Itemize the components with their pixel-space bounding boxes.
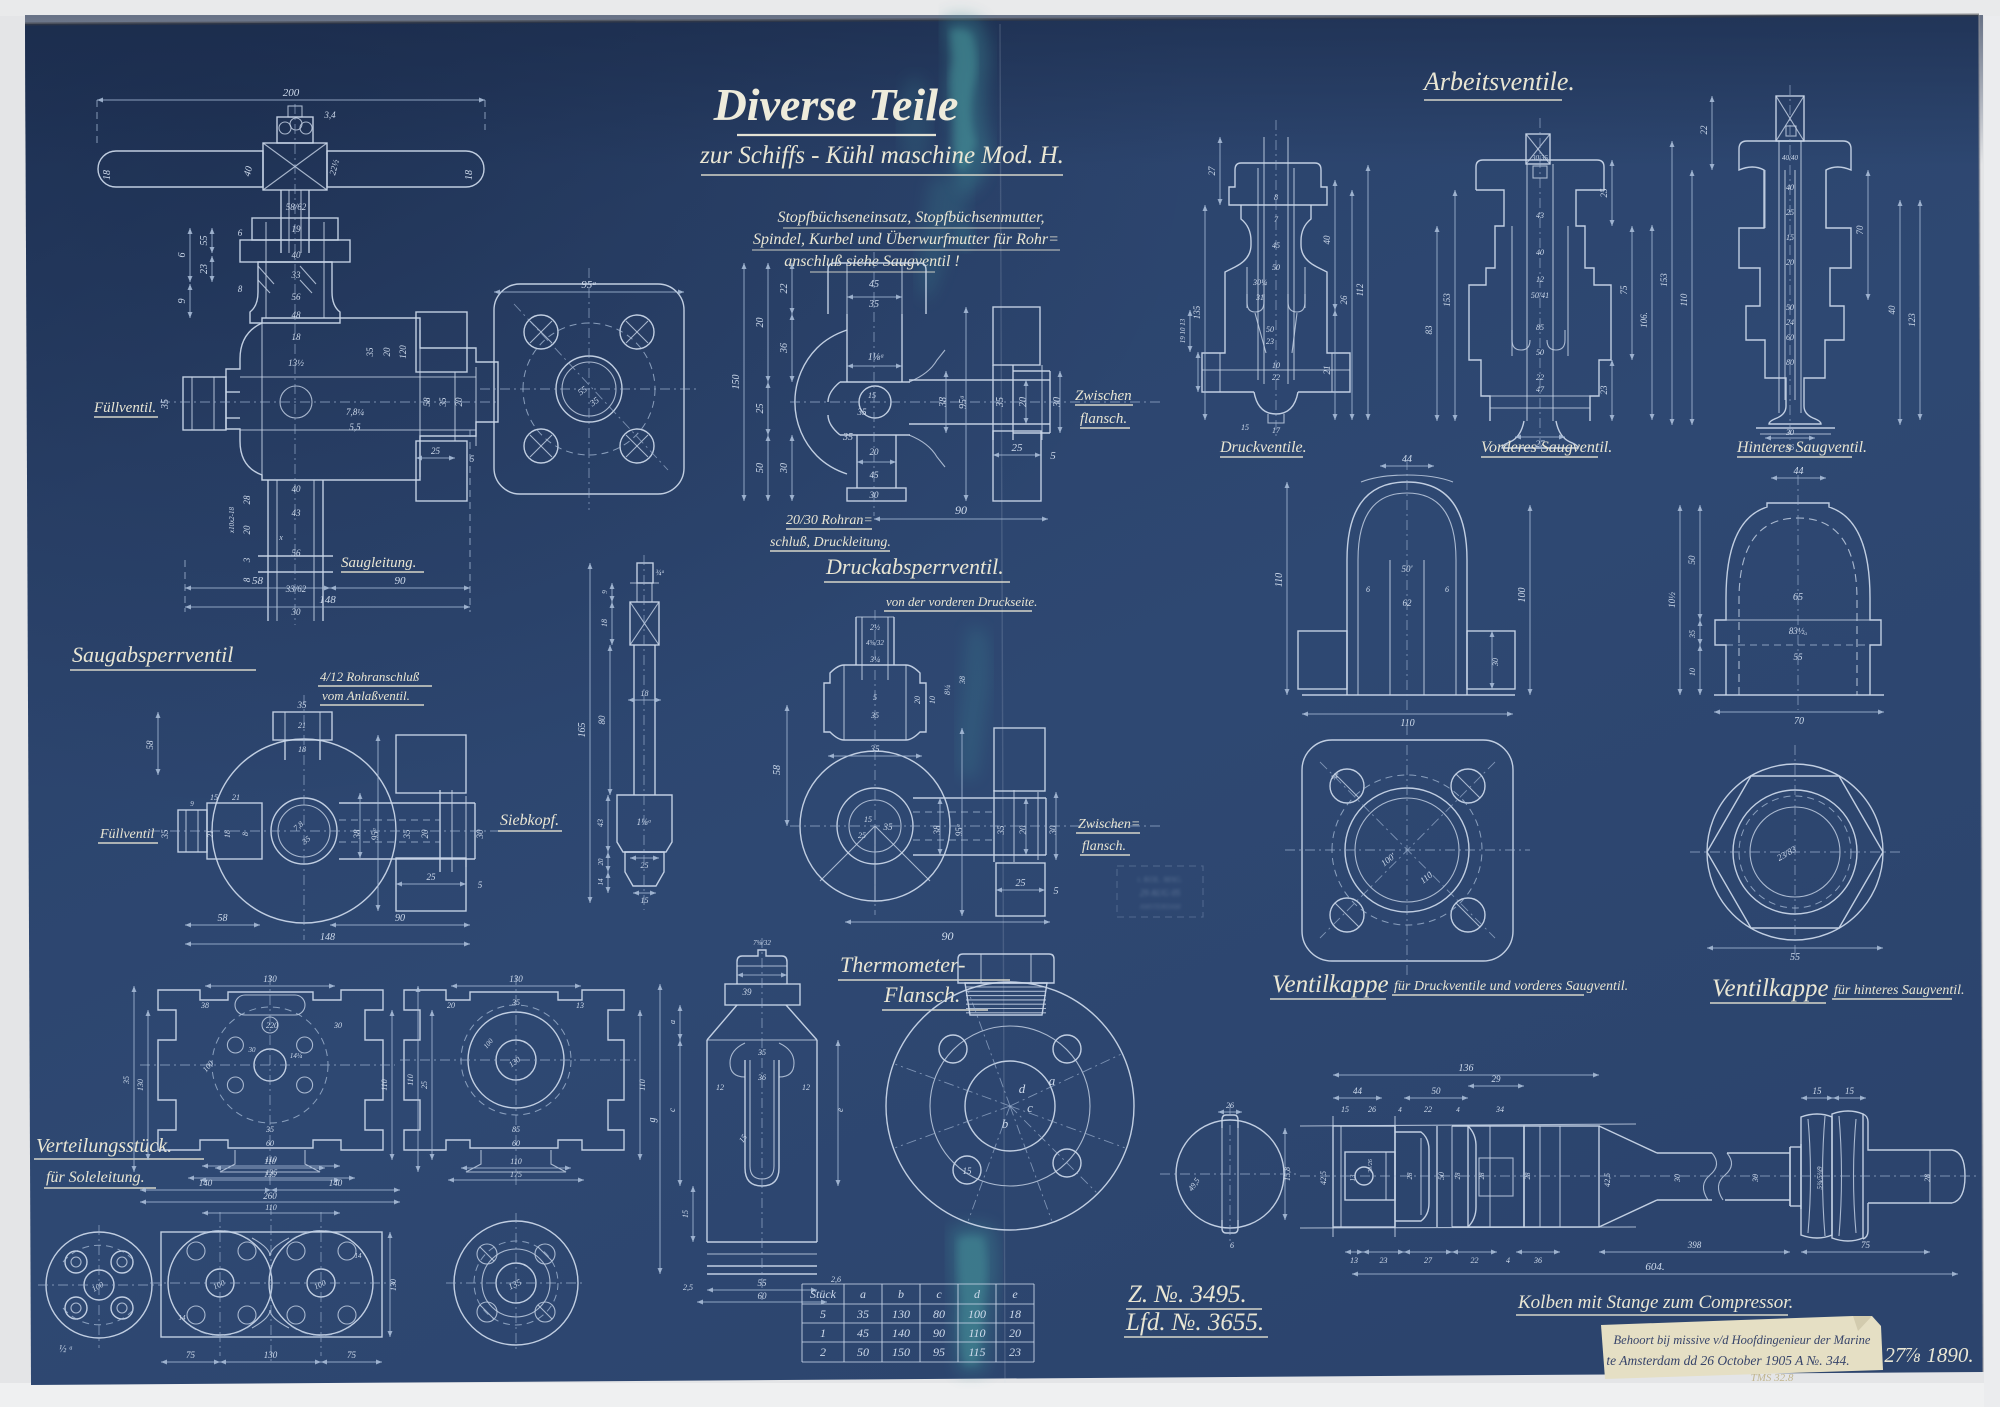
svg-text:20: 20 [1009, 1326, 1021, 1340]
svg-text:110: 110 [968, 1326, 985, 1340]
svg-text:70: 70 [1855, 225, 1865, 235]
svg-text:56: 56 [292, 292, 302, 302]
svg-text:25: 25 [1599, 188, 1609, 198]
svg-text:½ ᵃ: ½ ᵃ [59, 1344, 73, 1355]
svg-text:18: 18 [292, 332, 302, 342]
svg-text:43: 43 [1536, 211, 1544, 220]
svg-text:40: 40 [1786, 183, 1794, 192]
svg-text:25: 25 [1016, 878, 1026, 889]
svg-text:flansch.: flansch. [1082, 839, 1126, 854]
svg-text:7,8¼: 7,8¼ [346, 407, 364, 417]
svg-text:25: 25 [420, 1081, 429, 1089]
svg-text:18: 18 [298, 745, 306, 754]
svg-text:18: 18 [641, 689, 649, 698]
svg-text:27⅞ 1890.: 27⅞ 1890. [1884, 1343, 1973, 1367]
svg-text:60: 60 [1786, 333, 1794, 342]
svg-text:23: 23 [199, 264, 210, 274]
svg-text:95: 95 [933, 1345, 945, 1359]
svg-text:Flansch.: Flansch. [883, 982, 960, 1007]
svg-text:90: 90 [955, 503, 967, 517]
svg-text:15: 15 [1241, 423, 1249, 432]
svg-text:136: 136 [1459, 1063, 1474, 1074]
svg-text:flansch.: flansch. [1080, 411, 1127, 427]
svg-text:5: 5 [478, 880, 483, 890]
svg-text:35: 35 [996, 825, 1006, 836]
svg-text:36: 36 [1533, 1256, 1542, 1265]
svg-text:für hinteres Saugventil.: für hinteres Saugventil. [1834, 983, 1965, 998]
svg-text:83: 83 [1424, 325, 1434, 335]
svg-text:13½: 13½ [288, 358, 304, 368]
svg-text:30¼: 30¼ [1252, 278, 1267, 287]
svg-text:58: 58 [422, 397, 432, 407]
svg-text:95ᵃ: 95ᵃ [581, 279, 596, 291]
svg-text:x: x [278, 533, 283, 542]
svg-text:35: 35 [365, 347, 375, 358]
svg-text:110: 110 [380, 1079, 389, 1090]
svg-text:50': 50' [1402, 564, 1414, 574]
svg-text:Siebkopf.: Siebkopf. [500, 812, 559, 829]
svg-text:1: 1 [820, 1326, 826, 1340]
svg-text:8¼: 8¼ [943, 685, 952, 695]
svg-text:150: 150 [731, 375, 742, 390]
svg-text:30: 30 [333, 1021, 342, 1030]
svg-text:6: 6 [1366, 585, 1370, 594]
svg-text:130: 130 [892, 1307, 910, 1321]
svg-text:Verteilungsstück.: Verteilungsstück. [36, 1135, 172, 1157]
svg-text:Diverse Teile: Diverse Teile [713, 79, 959, 130]
svg-text:25: 25 [1012, 442, 1024, 454]
svg-text:58: 58 [218, 913, 228, 924]
svg-text:Saugleitung.: Saugleitung. [341, 555, 416, 571]
svg-text:130: 130 [136, 1079, 145, 1091]
svg-text:38: 38 [938, 397, 949, 408]
svg-text:44: 44 [1353, 1086, 1363, 1096]
svg-text:Füllventil: Füllventil [99, 827, 155, 842]
svg-text:30: 30 [1673, 1174, 1682, 1183]
svg-text:130: 130 [263, 974, 277, 984]
svg-text:95ᵃ: 95ᵃ [958, 395, 969, 409]
svg-text:anschluß siehe Saugventil !: anschluß siehe Saugventil ! [784, 253, 960, 270]
svg-text:40: 40 [1887, 305, 1897, 315]
svg-text:44: 44 [1794, 466, 1804, 477]
svg-text:110: 110 [265, 1203, 276, 1212]
svg-text:12: 12 [716, 1083, 724, 1092]
svg-text:10: 10 [928, 696, 937, 704]
svg-text:90: 90 [933, 1326, 945, 1340]
svg-text:Zwischen: Zwischen [1075, 388, 1132, 404]
svg-text:13: 13 [1350, 1256, 1358, 1265]
svg-text:8: 8 [1274, 193, 1278, 202]
svg-text:175: 175 [510, 1170, 522, 1179]
svg-text:55: 55 [199, 236, 210, 246]
svg-text:4/12 Rohranschluß: 4/12 Rohranschluß [320, 669, 420, 684]
svg-text:38: 38 [958, 676, 967, 685]
svg-text:38: 38 [200, 1001, 209, 1010]
svg-text:d: d [1019, 1081, 1026, 1096]
svg-text:12: 12 [802, 1083, 810, 1092]
svg-text:30: 30 [1751, 1174, 1760, 1183]
svg-text:200: 200 [283, 87, 300, 99]
svg-text:106.: 106. [1639, 312, 1649, 328]
svg-text:25: 25 [641, 861, 649, 870]
svg-text:75: 75 [347, 1350, 357, 1360]
svg-text:30: 30 [1785, 428, 1794, 437]
svg-text:schluß, Druckleitung.: schluß, Druckleitung. [770, 535, 891, 550]
svg-text:43: 43 [596, 819, 605, 827]
svg-text:9: 9 [601, 590, 609, 594]
svg-text:6: 6 [1230, 1241, 1234, 1250]
svg-text:21: 21 [1322, 366, 1332, 375]
svg-text:100: 100 [968, 1307, 986, 1321]
svg-text:50: 50 [857, 1345, 869, 1359]
svg-text:15: 15 [864, 815, 872, 824]
svg-text:Stopfbüchseneinsatz, Stopfbüch: Stopfbüchseneinsatz, Stopfbüchsenmutter, [777, 209, 1044, 226]
svg-text:Stück: Stück [810, 1287, 837, 1301]
svg-text:25: 25 [427, 872, 437, 882]
svg-text:28: 28 [1923, 1174, 1932, 1182]
svg-text:Druckventile.: Druckventile. [1219, 439, 1307, 456]
svg-text:3¼: 3¼ [869, 655, 880, 664]
svg-text:24: 24 [1786, 318, 1794, 327]
svg-text:c: c [667, 1108, 677, 1112]
svg-text:75: 75 [1619, 285, 1629, 295]
svg-text:Saugabsperrventil: Saugabsperrventil [72, 642, 233, 667]
svg-text:Arbeitsventile.: Arbeitsventile. [1422, 67, 1575, 96]
svg-text:80: 80 [1786, 358, 1794, 367]
svg-text:130: 130 [264, 1350, 278, 1360]
svg-text:Kolben mit Stange zum Compress: Kolben mit Stange zum Compressor. [1517, 1292, 1793, 1313]
svg-text:260: 260 [263, 1191, 277, 1201]
svg-text:604.: 604. [1645, 1261, 1664, 1273]
svg-text:110: 110 [1679, 293, 1689, 306]
svg-text:90: 90 [942, 929, 954, 943]
svg-text:8: 8 [238, 284, 243, 294]
svg-text:x10x2-18: x10x2-18 [228, 506, 236, 534]
svg-text:33: 33 [291, 270, 302, 280]
svg-text:45: 45 [1272, 241, 1280, 250]
svg-text:28: 28 [1406, 1172, 1414, 1180]
svg-text:35: 35 [1688, 630, 1697, 639]
svg-text:a: a [1049, 1073, 1056, 1088]
svg-text:Spindel, Kurbel und Überwurfmu: Spindel, Kurbel und Überwurfmutter für R… [753, 230, 1059, 248]
svg-text:14¼: 14¼ [290, 1052, 303, 1060]
svg-text:22: 22 [779, 284, 790, 294]
svg-text:5¾/5¼9: 5¾/5¼9 [1816, 1166, 1824, 1189]
svg-text:120: 120 [398, 345, 408, 359]
svg-text:50: 50 [1536, 348, 1544, 357]
svg-text:18: 18 [600, 619, 609, 627]
svg-text:10: 10 [1272, 361, 1280, 370]
svg-text:19: 19 [292, 224, 302, 234]
svg-text:33/62: 33/62 [285, 584, 307, 594]
svg-text:15,8: 15,8 [1283, 1167, 1292, 1181]
svg-text:29/26: 29/26 [1368, 1159, 1374, 1173]
svg-text:20: 20 [1786, 258, 1794, 267]
svg-text:35: 35 [857, 407, 868, 417]
svg-text:140: 140 [199, 1178, 213, 1188]
svg-text:58: 58 [252, 575, 264, 587]
svg-text:TMS 32.8: TMS 32.8 [1751, 1372, 1794, 1384]
svg-text:39: 39 [742, 987, 753, 997]
svg-text:150: 150 [892, 1345, 910, 1359]
svg-text:70: 70 [1794, 716, 1804, 727]
svg-text:18: 18 [102, 170, 113, 180]
svg-text:90: 90 [395, 575, 407, 587]
svg-text:50: 50 [1786, 303, 1794, 312]
svg-text:55: 55 [1794, 652, 1804, 662]
svg-text:50/41: 50/41 [1531, 291, 1549, 300]
svg-text:110: 110 [1274, 573, 1285, 587]
svg-text:¾ᵃ: ¾ᵃ [655, 568, 664, 577]
svg-text:62: 62 [1403, 598, 1413, 608]
svg-text:90: 90 [395, 913, 405, 924]
svg-text:t. KOL. MAG.: t. KOL. MAG. [1137, 875, 1182, 884]
svg-text:135: 135 [1192, 305, 1202, 319]
svg-text:c: c [1027, 1100, 1033, 1115]
svg-text:35: 35 [995, 397, 1006, 408]
svg-text:20: 20 [913, 696, 922, 704]
svg-text:Thermometer-: Thermometer- [840, 952, 965, 977]
svg-text:Vorderes Saugventil.: Vorderes Saugventil. [1481, 439, 1612, 456]
svg-text:22: 22 [1536, 373, 1544, 382]
svg-text:Ventilkappe: Ventilkappe [1712, 975, 1829, 1002]
svg-text:20: 20 [420, 829, 430, 839]
svg-text:4: 4 [1506, 1256, 1510, 1265]
svg-text:398: 398 [1687, 1240, 1702, 1250]
svg-text:19 10 13: 19 10 13 [1179, 318, 1187, 343]
svg-text:35: 35 [842, 432, 853, 443]
svg-text:zur Schiffs - Kühl maschine Mo: zur Schiffs - Kühl maschine Mod. H. [699, 142, 1064, 169]
svg-text:50: 50 [1437, 1172, 1446, 1180]
svg-text:20: 20 [447, 1001, 455, 1010]
svg-text:31: 31 [1255, 293, 1264, 302]
svg-text:40: 40 [1322, 235, 1332, 245]
svg-text:35: 35 [438, 397, 448, 408]
svg-text:für Soleleitung.: für Soleleitung. [46, 1169, 145, 1186]
svg-text:148: 148 [320, 932, 335, 943]
svg-text:40: 40 [1536, 248, 1544, 257]
svg-text:26: 26 [1226, 1101, 1234, 1110]
svg-text:26: 26 [1339, 295, 1349, 305]
svg-text:g: g [647, 1118, 658, 1123]
svg-text:35: 35 [511, 998, 520, 1007]
svg-text:35: 35 [122, 1076, 131, 1085]
svg-text:von der vorderen Druckseite.: von der vorderen Druckseite. [886, 594, 1037, 609]
svg-text:Füllventil.: Füllventil. [93, 400, 156, 416]
svg-text:60: 60 [758, 1291, 768, 1301]
svg-text:14: 14 [355, 1252, 363, 1260]
svg-text:te Amsterdam dd 26 October 190: te Amsterdam dd 26 October 1905 A №. 344… [1606, 1353, 1849, 1368]
svg-text:15: 15 [641, 896, 649, 905]
svg-text:15: 15 [868, 391, 876, 400]
svg-text:23: 23 [1599, 385, 1609, 395]
svg-text:1⅛ᵃ: 1⅛ᵃ [868, 352, 885, 363]
svg-text:vom Anlaßventil.: vom Anlaßventil. [322, 688, 410, 703]
svg-text:20: 20 [597, 858, 605, 866]
svg-text:22: 22 [1424, 1105, 1432, 1114]
svg-text:42,5: 42,5 [1603, 1173, 1612, 1187]
svg-text:45: 45 [857, 1326, 869, 1340]
svg-text:75: 75 [1861, 1240, 1871, 1250]
svg-text:Lfd. №. 3655.: Lfd. №. 3655. [1125, 1309, 1264, 1336]
svg-text:135: 135 [266, 1168, 278, 1177]
svg-text:13: 13 [576, 1001, 584, 1010]
svg-text:18: 18 [464, 170, 475, 180]
svg-text:21: 21 [298, 721, 306, 730]
svg-text:25: 25 [755, 404, 766, 414]
svg-text:27: 27 [1424, 1256, 1433, 1265]
svg-text:Behoort bij missive v/d Hoofdi: Behoort bij missive v/d Hoofdingenieur d… [1614, 1333, 1871, 1347]
svg-text:9: 9 [190, 800, 194, 808]
svg-text:15: 15 [963, 1166, 973, 1176]
svg-text:e: e [1012, 1287, 1018, 1301]
svg-text:20: 20 [242, 525, 252, 535]
svg-text:80: 80 [933, 1307, 945, 1321]
svg-text:25: 25 [1786, 208, 1794, 217]
svg-text:60: 60 [266, 1139, 274, 1148]
svg-text:36: 36 [779, 343, 790, 354]
svg-text:30: 30 [248, 1046, 257, 1054]
svg-text:15: 15 [1341, 1105, 1349, 1114]
svg-text:4: 4 [1398, 1106, 1402, 1114]
svg-text:c: c [936, 1287, 942, 1301]
svg-text:Zwischen=: Zwischen= [1078, 817, 1140, 832]
svg-text:für Druckventile und vorderes: für Druckventile und vorderes Saugventil… [1394, 979, 1628, 994]
svg-text:b: b [1002, 1116, 1009, 1131]
svg-text:58: 58 [145, 740, 155, 750]
svg-text:148: 148 [319, 594, 336, 606]
svg-text:30: 30 [291, 607, 302, 617]
svg-text:42,5: 42,5 [1319, 1171, 1328, 1185]
svg-text:5: 5 [1050, 450, 1056, 462]
svg-text:10½: 10½ [1667, 592, 1677, 608]
svg-text:20: 20 [454, 397, 464, 407]
svg-text:35: 35 [160, 829, 170, 840]
svg-text:22: 22 [1272, 373, 1280, 382]
svg-text:8: 8 [242, 577, 252, 582]
svg-text:18: 18 [1009, 1307, 1021, 1321]
svg-text:22: 22 [1699, 125, 1709, 135]
svg-text:140: 140 [892, 1326, 910, 1340]
svg-text:35: 35 [757, 1048, 766, 1057]
svg-text:130: 130 [509, 974, 523, 984]
svg-text:30: 30 [779, 463, 790, 474]
svg-text:26: 26 [1368, 1105, 1376, 1114]
svg-text:153: 153 [1659, 273, 1669, 287]
svg-text:115: 115 [968, 1345, 985, 1359]
svg-text:35: 35 [868, 299, 879, 310]
svg-text:123: 123 [1907, 313, 1917, 327]
svg-text:2,6: 2,6 [831, 1275, 841, 1284]
svg-text:140: 140 [329, 1178, 343, 1188]
svg-text:35: 35 [870, 711, 879, 720]
svg-text:55: 55 [1790, 952, 1800, 963]
svg-text:65: 65 [1793, 592, 1803, 603]
svg-text:220: 220 [266, 1021, 278, 1030]
svg-text:110: 110 [265, 1155, 276, 1164]
svg-text:83½ₐ: 83½ₐ [1789, 626, 1808, 636]
svg-text:23: 23 [1009, 1345, 1021, 1359]
svg-text:15: 15 [210, 793, 218, 802]
svg-text:48: 48 [292, 310, 302, 320]
svg-text:110: 110 [638, 1079, 647, 1090]
svg-text:b: b [898, 1287, 904, 1301]
svg-text:28: 28 [242, 495, 252, 505]
svg-text:130: 130 [389, 1279, 398, 1291]
svg-text:58: 58 [772, 765, 783, 775]
svg-text:28: 28 [1524, 1172, 1532, 1180]
svg-text:Druckabsperrventil.: Druckabsperrventil. [825, 554, 1004, 579]
svg-text:43: 43 [292, 508, 302, 518]
svg-text:47: 47 [1536, 385, 1545, 394]
svg-text:35: 35 [883, 822, 894, 832]
svg-text:4: 4 [1456, 1106, 1460, 1114]
svg-text:a: a [860, 1287, 866, 1301]
svg-text:15: 15 [1813, 1086, 1823, 1096]
svg-text:40: 40 [292, 250, 302, 260]
svg-text:6: 6 [238, 228, 243, 238]
svg-text:25: 25 [431, 446, 441, 456]
svg-text:35: 35 [160, 399, 171, 410]
svg-text:29 AUG 05: 29 AUG 05 [1140, 888, 1181, 898]
svg-text:75: 75 [186, 1350, 196, 1360]
svg-text:3: 3 [242, 557, 252, 563]
svg-text:20: 20 [755, 318, 766, 328]
svg-text:29: 29 [1492, 1074, 1502, 1084]
svg-text:AMSTERDAM: AMSTERDAM [1138, 903, 1181, 911]
svg-text:23: 23 [1266, 337, 1274, 346]
svg-text:58/62: 58/62 [286, 202, 307, 212]
svg-text:21: 21 [232, 793, 240, 802]
svg-text:85: 85 [512, 1125, 520, 1134]
svg-text:40/40: 40/40 [1782, 154, 1798, 162]
svg-text:e: e [835, 1108, 845, 1112]
svg-text:Z. №. 3495.: Z. №. 3495. [1128, 1281, 1247, 1308]
svg-text:15: 15 [681, 1210, 690, 1218]
svg-text:40: 40 [292, 484, 302, 494]
svg-text:3,4: 3,4 [323, 110, 336, 120]
svg-text:5: 5 [820, 1307, 826, 1321]
svg-text:27: 27 [1207, 166, 1217, 176]
svg-text:50: 50 [1272, 263, 1280, 272]
svg-text:23: 23 [1380, 1256, 1388, 1265]
svg-text:28: 28 [1478, 1172, 1486, 1180]
svg-text:80: 80 [597, 715, 607, 725]
svg-text:110: 110 [510, 1157, 521, 1166]
svg-text:20/30 Rohran=: 20/30 Rohran= [786, 513, 873, 528]
svg-text:a: a [668, 1020, 677, 1024]
svg-text:34: 34 [1495, 1105, 1504, 1114]
svg-text:5: 5 [1054, 886, 1059, 897]
svg-text:9: 9 [177, 299, 188, 304]
svg-text:20: 20 [1018, 397, 1029, 407]
svg-text:50: 50 [1687, 555, 1697, 565]
svg-text:35: 35 [856, 1307, 869, 1321]
svg-text:20: 20 [382, 347, 392, 357]
svg-text:28: 28 [1454, 1172, 1462, 1180]
svg-text:50: 50 [1266, 325, 1274, 334]
svg-text:50: 50 [755, 463, 766, 473]
svg-text:12: 12 [1536, 275, 1544, 284]
svg-text:55: 55 [758, 1278, 768, 1288]
svg-text:35: 35 [297, 700, 308, 710]
svg-text:15: 15 [1845, 1086, 1855, 1096]
svg-text:30: 30 [1052, 397, 1063, 408]
svg-text:d: d [974, 1287, 981, 1301]
svg-text:14: 14 [597, 878, 605, 886]
svg-text:100: 100 [1517, 588, 1528, 603]
svg-text:2,5: 2,5 [683, 1283, 693, 1292]
